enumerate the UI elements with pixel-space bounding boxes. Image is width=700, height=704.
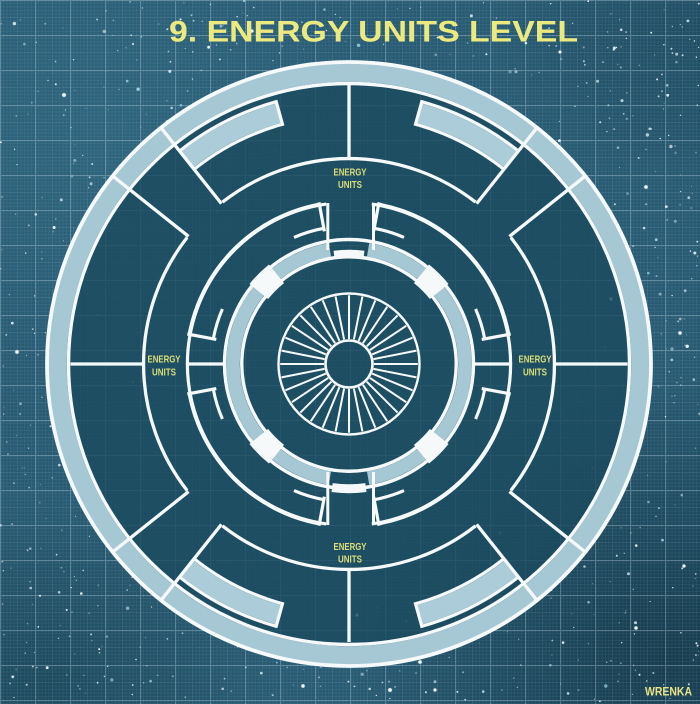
svg-text:UNITS: UNITS [338, 554, 362, 565]
svg-text:UNITS: UNITS [338, 180, 362, 191]
svg-text:ENERGY: ENERGY [519, 355, 552, 366]
svg-text:ENERGY: ENERGY [334, 542, 367, 553]
svg-text:UNITS: UNITS [523, 367, 547, 378]
svg-text:WRENKA: WRENKA [645, 685, 692, 699]
svg-text:ENERGY: ENERGY [334, 167, 367, 178]
svg-text:UNITS: UNITS [152, 367, 176, 378]
svg-text:9. ENERGY UNITS LEVEL: 9. ENERGY UNITS LEVEL [169, 16, 578, 49]
svg-text:ENERGY: ENERGY [148, 355, 181, 366]
